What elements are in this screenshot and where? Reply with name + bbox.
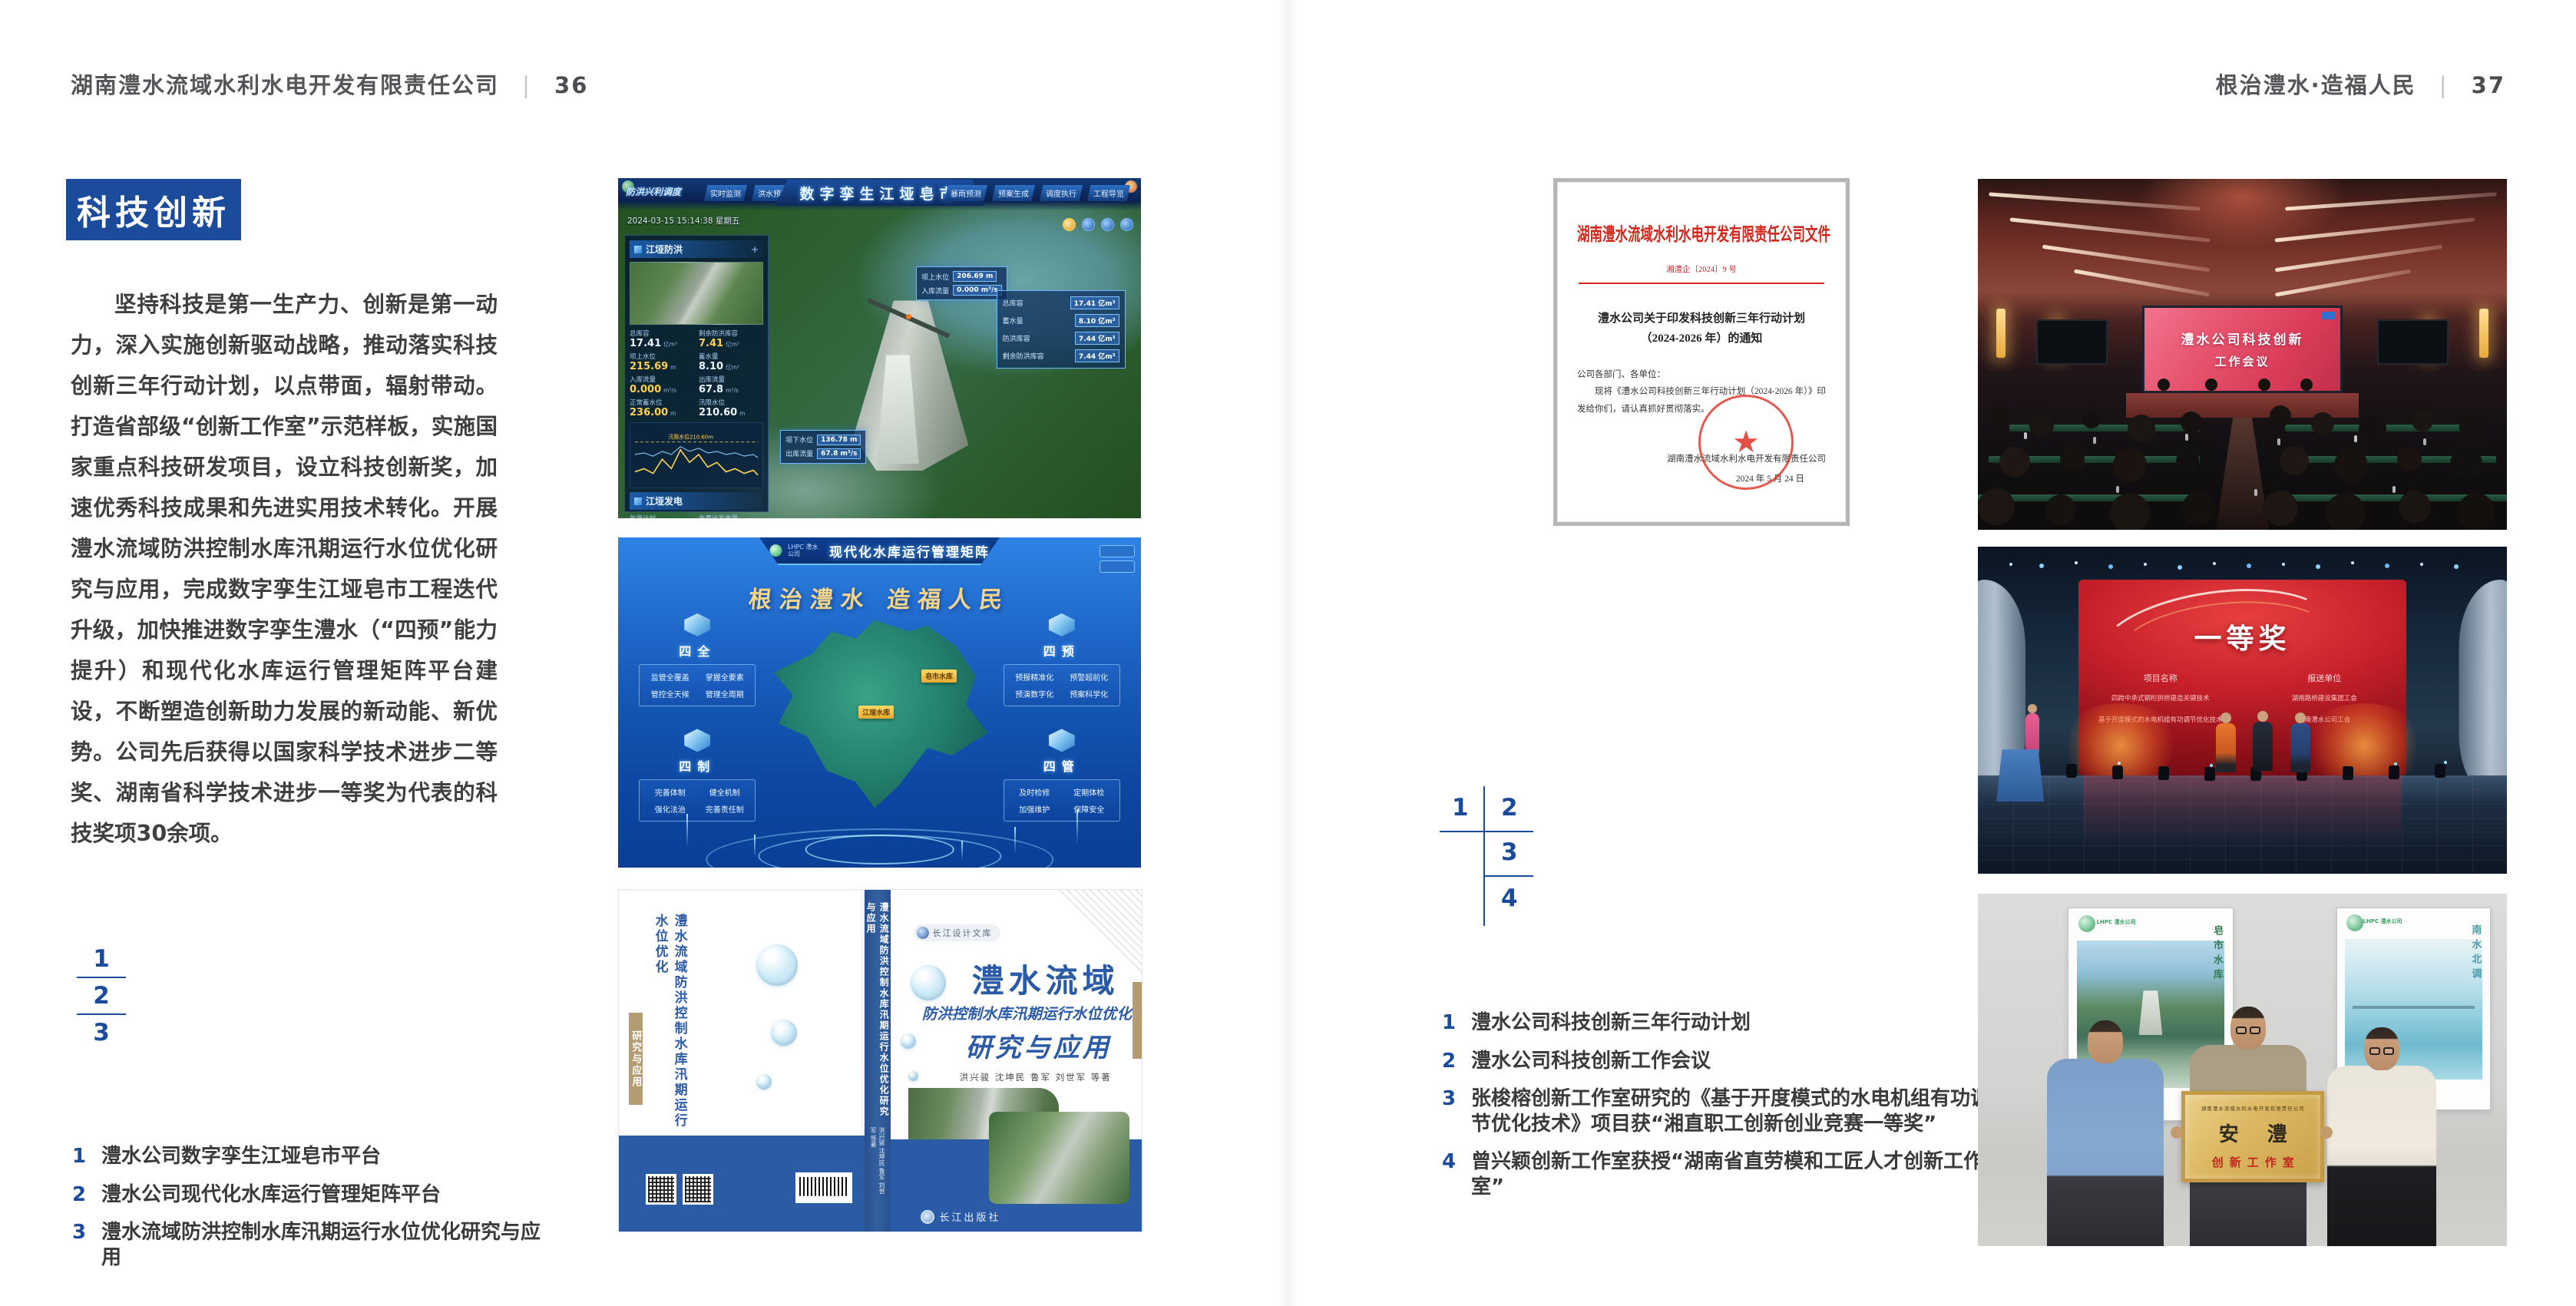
- tab-dispatch-execute: 调度执行: [1040, 185, 1083, 201]
- dashboard-datetime: 2024-03-15 15:14:38 星期五: [627, 215, 739, 226]
- spine-authors: 洪兴骏 沈坤民 鲁军 刘世军 等著: [869, 1127, 886, 1199]
- head-table: [2126, 393, 2359, 418]
- figure-award-photo: 一等奖 项目名称报送单位 四跨中承式钢桁拱桥建造关键技术湖南路桥建设集团工会 基…: [1978, 547, 2507, 874]
- expand-icon: +: [751, 244, 759, 255]
- figure-index-number: 2: [1501, 794, 1518, 822]
- audience-silhouettes: [2270, 405, 2291, 427]
- bubble-graphic: [756, 1074, 772, 1089]
- stat-cell: 总库容17.41亿m³: [630, 329, 694, 349]
- meeting-screen: 澧水公司科技创新 工作会议: [2142, 306, 2343, 393]
- bubble-graphic: [771, 1020, 797, 1046]
- book-spine: 澧水流域防洪控制水库汛期运行水位优化研究与应用 洪兴骏 沈坤民 鲁军 刘世军 等…: [865, 890, 891, 1232]
- bubble-graphic: [901, 1033, 916, 1049]
- figure-index-number: 2: [77, 978, 126, 1013]
- publisher: 长江出版社: [921, 1209, 1000, 1224]
- section-title: 科技创新: [66, 179, 241, 240]
- ripple-ring: [805, 835, 954, 864]
- official-seal-icon: ★: [1698, 395, 1794, 490]
- tab-rain-forecast: 暴雨预测: [944, 185, 987, 201]
- stage-lights-row: [2009, 563, 2012, 566]
- podium: [1996, 749, 2044, 802]
- panel-title: 江垭发电: [646, 494, 683, 508]
- glasses-icon: [2369, 1047, 2394, 1055]
- book-back-cover: 澧水流域防洪控制水库汛期运行水位优化 研究与应用: [619, 890, 865, 1232]
- caption-row: 3 澧水流域防洪控制水库汛期运行水位优化研究与应用: [72, 1220, 548, 1270]
- book-title-line2: 防洪控制水库汛期运行水位优化: [922, 1001, 1132, 1023]
- caption-text: 澧水公司数字孪生江垭皂市平台: [101, 1144, 548, 1169]
- page-gutter: [1278, 0, 1298, 1306]
- matrix-slogan: 根治澧水 造福人民: [618, 580, 1141, 614]
- book-authors: 洪兴骏 沈坤民 鲁军 刘世军 等著: [960, 1071, 1112, 1083]
- book-title-line3: 研究与应用: [966, 1027, 1112, 1064]
- worker-marker-icon: [906, 314, 911, 319]
- wall-lamp: [1996, 309, 2006, 358]
- figure-index-number: 1: [1452, 794, 1469, 822]
- matrix-title: 现代化水库运行管理矩阵: [829, 541, 990, 560]
- qr-code: [646, 1174, 676, 1205]
- figure-book-cover: 澧水流域防洪控制水库汛期运行水位优化 研究与应用 澧水流域防洪控制水库汛期运行水…: [618, 889, 1143, 1232]
- caption-row: 1 澧水公司数字孪生江垭皂市平台: [72, 1144, 548, 1169]
- stage-pillar: [2459, 580, 2507, 802]
- caption-text: 澧水公司现代化水库运行管理矩阵平台: [101, 1182, 548, 1208]
- tab-project-tour: 工程导览: [1087, 185, 1130, 201]
- audience-table: [1978, 494, 2200, 501]
- qr-code: [683, 1174, 713, 1205]
- person-blue-polo: [2047, 1020, 2164, 1246]
- stat-cell: 入库流量0.000m³/s: [630, 375, 694, 395]
- stat-cell: 汛限水位210.60m: [699, 398, 763, 418]
- mode-label: 防洪兴利调度: [626, 185, 681, 198]
- stat-cell: 年累计发电量1.2907亿度: [699, 514, 763, 518]
- panel-title: 江垭防洪: [646, 243, 683, 256]
- series-badge: 长江设计文库: [914, 924, 1000, 941]
- caption-row: 2 澧水公司科技创新工作会议: [1442, 1049, 1998, 1074]
- figure-index-number: 4: [1501, 884, 1518, 912]
- awardee-orange: [2216, 723, 2236, 772]
- barcode: [795, 1172, 852, 1203]
- caption-number: 4: [1442, 1149, 1471, 1199]
- document-body: 现将《澧水公司科技创新三年行动计划（2024-2026 年）》印发给你们，请认真…: [1577, 383, 1826, 418]
- figure-index-right: 1 2 3 4: [1440, 786, 1533, 926]
- dashboard-title: 数字孪生江垭皂市: [799, 183, 959, 203]
- body-paragraph: 坚持科技是第一生产力、创新是第一动力，深入实施创新驱动战略，推动落实科技创新三年…: [71, 284, 498, 854]
- audience-table: [2285, 456, 2497, 463]
- panel-header-flood: 江垭防洪 +: [630, 240, 763, 258]
- document-red-rule: [1579, 283, 1824, 284]
- center-aisle: [2216, 418, 2269, 530]
- dam-photo-small: [989, 1112, 1129, 1204]
- water-bottles: [2024, 432, 2027, 439]
- stat-cell: 年度计划6.3000亿度: [630, 514, 694, 518]
- caption-row: 3 张梭榕创新工作室研究的《基于开度模式的水电机组有功调节优化技术》项目获“湘直…: [1442, 1086, 1998, 1136]
- stat-cell: 正常蓄水位236.00m: [630, 398, 694, 418]
- right-page-header: 根治澧水·造福人民 | 37: [2216, 68, 2505, 100]
- matrix-group-siquan: 四全 监管全覆盖掌握全要素 管控全天候管理全周期: [639, 613, 756, 706]
- water-level-chart: 汛限水位210.60m: [630, 422, 763, 488]
- index-rule: [1483, 786, 1485, 926]
- figure-plaque-photo: LHPC 澧水公司 皂市水库 LHPC 澧水公司 南水北调 湖南澧水流域水利水电…: [1978, 894, 2507, 1246]
- stage-floor: [1978, 775, 2507, 874]
- panel-header-power: 江垭发电: [630, 492, 763, 510]
- ceiling-glow: [2137, 179, 2349, 249]
- lhpc-logo-icon: [2346, 914, 2363, 931]
- svg-text:汛限水位210.60m: 汛限水位210.60m: [668, 433, 713, 440]
- matrix-group-siguan: 四管 及时检修定期体检 加强维护保障安全: [1004, 729, 1120, 822]
- tab-plan-generate: 预案生成: [992, 185, 1035, 201]
- matrix-group-sizhi: 四制 完善体制健全机制 强化法治完善责任制: [639, 729, 756, 822]
- audience-table: [1989, 456, 2201, 463]
- matrix-button: [1100, 560, 1135, 573]
- caption-text: 曾兴颖创新工作室获授“湖南省直劳模和工匠人才创新工作室”: [1471, 1149, 1998, 1199]
- audience-silhouettes: [1989, 405, 2010, 427]
- upstream-level-tag: 坝上水位206.69 m 入库流量0.000 m³/s: [916, 266, 1007, 300]
- captions-left: 1 澧水公司数字孪生江垭皂市平台 2 澧水公司现代化水库运行管理矩阵平台 3 澧…: [72, 1144, 548, 1283]
- plaque-main-text: 安 澧: [2208, 1119, 2298, 1147]
- innovation-studio-plaque: 湖南澧水流域水利水电开发有限责任公司 安 澧 创新工作室: [2181, 1091, 2324, 1182]
- glasses-icon: [2236, 1027, 2260, 1034]
- stat-cell: 出库流量67.8m³/s: [699, 375, 763, 395]
- side-display: [2377, 319, 2449, 365]
- front-tan-block: [1133, 982, 1142, 1059]
- side-display: [2036, 319, 2108, 365]
- book-front-cover: 长江设计文库 澧水流域 防洪控制水库汛期运行水位优化 研究与应用 洪兴骏 沈坤民…: [891, 890, 1142, 1232]
- caption-number: 1: [72, 1144, 101, 1169]
- caption-text: 澧水公司科技创新工作会议: [1471, 1049, 1998, 1074]
- seal-star-icon: ★: [1732, 425, 1760, 460]
- bubble-graphic: [908, 1071, 918, 1081]
- panel-inset-photo: [630, 262, 763, 325]
- locate-icon: [1101, 218, 1114, 231]
- brochure-spread: 湖南澧水流域水利水电开发有限责任公司 | 36 根治澧水·造福人民 | 37 科…: [0, 0, 2576, 1306]
- figure-index-number: 3: [77, 1015, 126, 1050]
- series-logo-icon: [917, 927, 929, 939]
- stat-cell: 坝上水位215.69m: [630, 352, 694, 372]
- publisher-logo-icon: [921, 1210, 934, 1224]
- map-label-jiangya: 江垭水库: [858, 706, 894, 719]
- bubble-graphic: [911, 965, 946, 1000]
- caption-number: 2: [72, 1182, 101, 1208]
- settings-icon: [1120, 218, 1133, 231]
- wall-lamp: [2479, 309, 2488, 358]
- slogan-text: 根治澧水·造福人民: [2216, 72, 2416, 98]
- group-icon: [1049, 729, 1075, 752]
- page-number-right: 37: [2472, 72, 2505, 98]
- document-number: 湘澧企〔2024〕9 号: [1577, 263, 1826, 275]
- caption-row: 4 曾兴颖创新工作室获授“湖南省直劳模和工匠人才创新工作室”: [1442, 1149, 1998, 1199]
- dashboard-left-panel: 江垭防洪 + 总库容17.41亿m³ 剩余防洪库容7.41亿m³ 坝上水位215…: [624, 235, 769, 512]
- front-bottom-band: 长江出版社: [891, 1139, 1142, 1232]
- figure-digital-twin-platform: 防洪兴利调度 实时监测 洪水预报 防洪预警 数字孪生江垭皂市 暴雨预测 预案生成…: [618, 178, 1141, 518]
- layers-icon: [1082, 218, 1095, 231]
- left-page-header: 湖南澧水流域水利水电开发有限责任公司 | 36: [71, 68, 588, 100]
- downstream-level-tag: 坝下水位136.78 m 出库流量67.8 m³/s: [780, 430, 866, 464]
- caption-text: 张梭榕创新工作室研究的《基于开度模式的水电机组有功调节优化技术》项目获“湘直职工…: [1471, 1086, 1998, 1136]
- tab-realtime-monitor: 实时监测: [704, 185, 747, 201]
- document-date: 2024 年 5 月 24 日: [1577, 472, 1826, 484]
- document-title: 澧水公司关于印发科技创新三年行动计划（2024-2026 年）的通知: [1586, 309, 1817, 349]
- capacity-panel: 总库容17.41 亿m³ 蓄水量8.10 亿m³ 防洪库容7.44 亿m³ 剩余…: [997, 290, 1126, 369]
- document-salutation: 公司各部门、各单位：: [1577, 368, 1826, 380]
- figure-official-document: 湖南澧水流域水利水电开发有限责任公司文件 湘澧企〔2024〕9 号 澧水公司关于…: [1553, 178, 1850, 526]
- person-white-top: [2327, 1027, 2436, 1246]
- company-name: 湖南澧水流域水利水电开发有限责任公司: [71, 72, 499, 98]
- figure-matrix-platform: LHPC 澧水公司 现代化水库运行管理矩阵 根治澧水 造福人民 江垭水库 皂市水…: [618, 537, 1141, 868]
- awardee-blue: [2290, 723, 2310, 772]
- page-number-left: 36: [554, 72, 588, 98]
- poster-vertical-text: 皂市水库: [2210, 925, 2224, 984]
- audience-table: [2285, 425, 2475, 431]
- back-cover-title: 澧水流域防洪控制水库汛期运行水位优化: [651, 914, 689, 1132]
- poster-vertical-text: 南水北调: [2468, 924, 2482, 983]
- matrix-button: [1100, 545, 1135, 557]
- group-icon: [1049, 613, 1075, 636]
- bubble-graphic: [756, 944, 798, 986]
- dashboard-top-bar: 防洪兴利调度 实时监测 洪水预报 防洪预警 数字孪生江垭皂市 暴雨预测 预案生成…: [618, 178, 1141, 210]
- caption-number: 3: [1442, 1086, 1471, 1136]
- stat-cell: 剩余防洪库容7.41亿m³: [699, 329, 763, 349]
- header-divider: |: [2439, 72, 2449, 98]
- captions-right: 1 澧水公司科技创新三年行动计划 2 澧水公司科技创新工作会议 3 张梭榕创新工…: [1442, 1010, 1998, 1212]
- stat-cell: 蓄水量8.10亿m³: [699, 352, 763, 372]
- index-rule: [1483, 875, 1533, 877]
- caption-row: 2 澧水公司现代化水库运行管理矩阵平台: [72, 1182, 548, 1208]
- plaque-company-line: 湖南澧水流域水利水电开发有限责任公司: [2201, 1104, 2305, 1112]
- caption-text: 澧水公司科技创新三年行动计划: [1471, 1010, 1998, 1036]
- document-red-header: 湖南澧水流域水利水电开发有限责任公司文件: [1577, 220, 1826, 246]
- lhpc-logo-icon: [769, 544, 782, 557]
- index-rule: [1440, 831, 1533, 832]
- alert-icon: [1063, 218, 1076, 231]
- caption-number: 1: [1442, 1010, 1471, 1036]
- back-bottom-band: [619, 1136, 865, 1232]
- lhpc-logo-icon: [2078, 915, 2095, 932]
- plaque-sub-text: 创新工作室: [2206, 1154, 2300, 1170]
- matrix-group-siyu: 四预 预报精准化预警超前化 预演数字化预案科学化: [1004, 613, 1120, 706]
- group-icon: [684, 613, 710, 636]
- group-icon: [684, 729, 710, 752]
- lhpc-logo-text: LHPC 澧水公司: [788, 544, 823, 557]
- map-label-zaoshi: 皂市水库: [921, 670, 957, 683]
- back-tan-block: 研究与应用: [629, 1013, 643, 1105]
- caption-number: 3: [72, 1220, 101, 1270]
- figure-index-number: 1: [77, 941, 126, 977]
- audience-table: [2009, 425, 2200, 431]
- flood-stats-grid: 总库容17.41亿m³ 剩余防洪库容7.41亿m³ 坝上水位215.69m 蓄水…: [630, 329, 763, 418]
- presenter-suit: [2253, 722, 2273, 771]
- figure-index-left: 1 2 3: [77, 941, 126, 1050]
- nav-tabs-right: 暴雨预测 预案生成 调度执行 工程导览: [944, 185, 1130, 201]
- caption-text: 澧水流域防洪控制水库汛期运行水位优化研究与应用: [101, 1220, 548, 1270]
- hand: [2320, 1126, 2333, 1139]
- header-divider: |: [522, 72, 531, 98]
- panel-icon: [634, 498, 642, 505]
- figure-index-number: 3: [1501, 838, 1518, 866]
- award-columns: 项目名称报送单位: [2078, 672, 2406, 684]
- screen-logo-icon: [2322, 312, 2336, 319]
- power-stats-grid: 年度计划6.3000亿度 年累计发电量1.2907亿度 月累计发电量3359.2…: [630, 514, 763, 518]
- figure-meeting-photo: 澧水公司科技创新 工作会议: [1978, 179, 2507, 530]
- caption-row: 1 澧水公司科技创新三年行动计划: [1442, 1010, 1998, 1036]
- award-row: 四跨中承式钢桁拱桥建造关键技术湖南路桥建设集团工会: [2078, 693, 2406, 703]
- panel-icon: [634, 246, 642, 253]
- host-figure: [2025, 713, 2039, 753]
- dashboard-tool-icons: [1063, 218, 1133, 231]
- spine-title: 澧水流域防洪控制水库汛期运行水位优化研究与应用: [865, 902, 891, 1119]
- matrix-top-bar: LHPC 澧水公司 现代化水库运行管理矩阵: [759, 537, 1000, 565]
- audience-table: [2285, 494, 2507, 501]
- book-title-line1: 澧水流域: [972, 955, 1119, 1002]
- caption-number: 2: [1442, 1049, 1471, 1074]
- award-headline: 一等奖: [2078, 617, 2406, 656]
